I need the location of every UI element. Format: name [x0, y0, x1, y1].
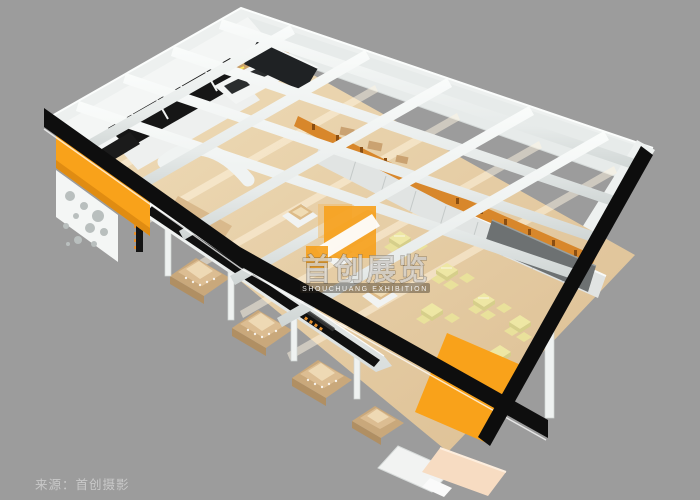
exhibition-render-canvas: 首创展览 SHOUCHUANG EXHIBITION 来源：首创摄影	[0, 0, 700, 500]
screenshot-root: 首创展览 SHOUCHUANG EXHIBITION 来源：首创摄影	[0, 0, 700, 500]
watermark-title: 首创展览	[302, 254, 430, 287]
source-caption: 来源：首创摄影	[35, 477, 130, 492]
watermark-subtitle: SHOUCHUANG EXHIBITION	[302, 286, 428, 293]
